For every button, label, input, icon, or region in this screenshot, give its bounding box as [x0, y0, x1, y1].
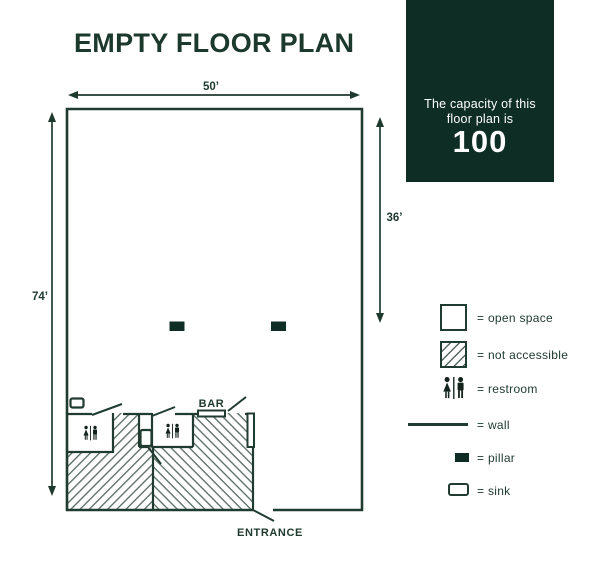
- legend-label-open-space: = open space: [477, 311, 553, 325]
- door-bar: [228, 397, 246, 411]
- legend-label-wall: = wall: [477, 418, 510, 432]
- restroom-icon-left: [84, 426, 98, 441]
- sink-swatch: [448, 483, 469, 496]
- legend-label-pillar: = pillar: [477, 451, 515, 465]
- wall-line: [408, 423, 468, 426]
- pillar-2: [271, 322, 286, 332]
- sink-1: [71, 399, 84, 408]
- height-dimension-label: 74’: [32, 291, 48, 303]
- not-accessible-swatch: [440, 341, 467, 368]
- bar-label: BAR: [199, 398, 225, 410]
- pillar-swatch: [455, 453, 469, 462]
- pillar-1: [170, 322, 185, 332]
- door-entrance: [253, 510, 274, 521]
- entrance-label: ENTRANCE: [237, 527, 303, 539]
- door-restroom-right: [152, 407, 175, 416]
- legend-label-not-accessible: = not accessible: [477, 348, 568, 362]
- legend-label-sink: = sink: [477, 484, 510, 498]
- open-space-swatch: [440, 304, 467, 331]
- restroom-icon-right: [166, 424, 180, 439]
- sink-2: [141, 430, 152, 446]
- width-dimension-label: 50’: [203, 81, 219, 93]
- legend-label-restroom: = restroom: [477, 382, 538, 396]
- right-section-dimension-label: 36’: [387, 212, 403, 224]
- bar-counter: [198, 411, 225, 417]
- restroom-icon: [441, 376, 467, 400]
- side-counter: [248, 414, 255, 448]
- page: EMPTY FLOOR PLAN The capacity of this fl…: [0, 0, 600, 569]
